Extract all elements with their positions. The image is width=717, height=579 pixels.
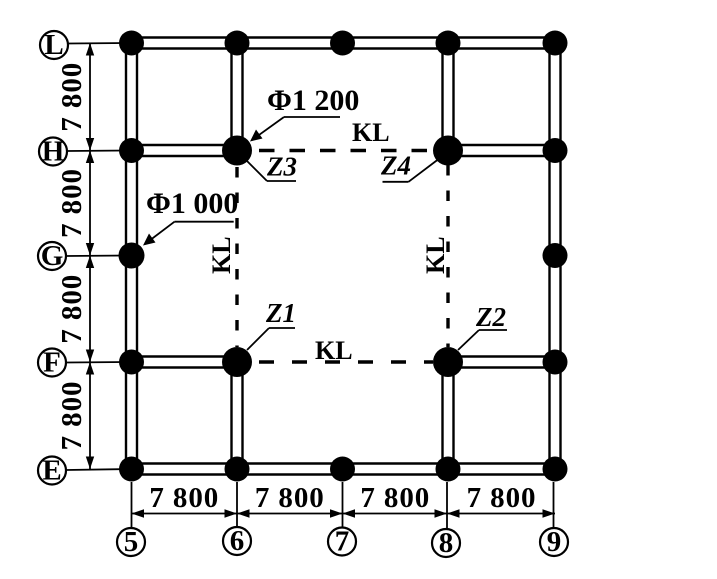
svg-text:8: 8 xyxy=(439,527,454,559)
svg-text:E: E xyxy=(42,455,61,487)
svg-text:Φ1 200: Φ1 200 xyxy=(267,84,359,117)
svg-text:5: 5 xyxy=(124,526,139,558)
svg-text:7 800: 7 800 xyxy=(149,482,219,514)
svg-text:7 800: 7 800 xyxy=(56,381,88,451)
svg-text:7 800: 7 800 xyxy=(360,482,430,514)
svg-text:6: 6 xyxy=(230,525,245,557)
svg-text:G: G xyxy=(41,240,64,272)
svg-text:L: L xyxy=(44,29,63,61)
svg-text:F: F xyxy=(43,347,61,379)
svg-text:7 800: 7 800 xyxy=(467,482,537,514)
svg-text:Z2: Z2 xyxy=(475,302,506,332)
svg-text:7 800: 7 800 xyxy=(56,274,88,344)
svg-text:KL: KL xyxy=(315,336,353,365)
svg-text:7 800: 7 800 xyxy=(56,62,88,132)
svg-text:KL: KL xyxy=(421,236,450,274)
svg-text:Z1: Z1 xyxy=(265,298,296,328)
svg-text:Z4: Z4 xyxy=(380,150,411,180)
svg-text:KL: KL xyxy=(207,236,236,274)
svg-text:Φ1 000: Φ1 000 xyxy=(146,187,238,220)
svg-text:H: H xyxy=(42,136,65,168)
svg-text:7: 7 xyxy=(335,526,350,558)
svg-text:7 800: 7 800 xyxy=(255,482,325,514)
svg-text:9: 9 xyxy=(547,526,562,558)
svg-text:Z3: Z3 xyxy=(266,152,297,182)
svg-text:KL: KL xyxy=(352,118,390,147)
svg-text:7 800: 7 800 xyxy=(56,168,88,238)
